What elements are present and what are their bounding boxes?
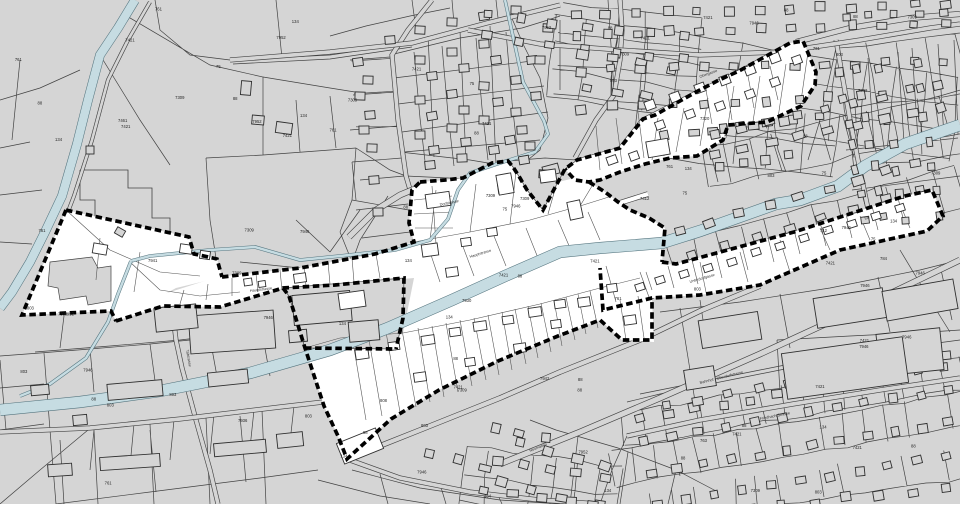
svg-text:7421: 7421 bbox=[499, 273, 509, 278]
svg-text:803: 803 bbox=[836, 52, 844, 57]
svg-text:88: 88 bbox=[38, 101, 43, 106]
svg-text:75: 75 bbox=[822, 171, 827, 176]
svg-text:7946: 7946 bbox=[860, 283, 870, 288]
svg-text:7421: 7421 bbox=[453, 384, 463, 389]
svg-text:7946: 7946 bbox=[511, 204, 521, 209]
svg-text:761: 761 bbox=[813, 46, 821, 51]
svg-text:803: 803 bbox=[305, 414, 313, 419]
svg-text:7309: 7309 bbox=[175, 95, 185, 100]
svg-text:7421: 7421 bbox=[815, 384, 825, 389]
svg-text:7421: 7421 bbox=[860, 338, 870, 343]
svg-text:134: 134 bbox=[300, 113, 308, 118]
svg-text:88: 88 bbox=[233, 96, 238, 101]
svg-text:7936: 7936 bbox=[238, 418, 248, 423]
svg-text:88: 88 bbox=[577, 387, 582, 392]
svg-text:7309: 7309 bbox=[931, 171, 941, 176]
svg-text:761: 761 bbox=[330, 128, 338, 133]
svg-text:712: 712 bbox=[820, 228, 828, 233]
svg-text:7952: 7952 bbox=[542, 25, 552, 30]
svg-text:88: 88 bbox=[91, 396, 96, 401]
svg-text:75: 75 bbox=[470, 81, 475, 86]
svg-text:134: 134 bbox=[604, 488, 612, 493]
svg-text:7421: 7421 bbox=[283, 133, 293, 138]
svg-text:7421: 7421 bbox=[826, 260, 836, 265]
svg-text:88: 88 bbox=[608, 25, 613, 30]
svg-text:7461: 7461 bbox=[118, 118, 128, 123]
svg-text:75: 75 bbox=[503, 207, 508, 212]
svg-text:88: 88 bbox=[453, 356, 458, 361]
svg-text:803: 803 bbox=[767, 173, 775, 178]
svg-text:808: 808 bbox=[380, 398, 388, 403]
svg-text:134: 134 bbox=[340, 453, 348, 458]
svg-text:134: 134 bbox=[405, 258, 413, 263]
svg-text:763: 763 bbox=[700, 438, 708, 443]
svg-text:7421: 7421 bbox=[853, 445, 863, 450]
svg-text:134: 134 bbox=[446, 315, 454, 320]
svg-text:7362: 7362 bbox=[858, 88, 868, 93]
svg-text:784: 784 bbox=[880, 256, 888, 261]
svg-text:803: 803 bbox=[610, 78, 618, 83]
svg-text:7421: 7421 bbox=[703, 15, 713, 20]
svg-text:761: 761 bbox=[155, 6, 163, 11]
svg-text:803: 803 bbox=[421, 423, 429, 428]
svg-text:134: 134 bbox=[484, 493, 492, 498]
svg-text:7421: 7421 bbox=[412, 67, 422, 72]
svg-text:75: 75 bbox=[216, 64, 221, 69]
svg-text:88: 88 bbox=[578, 377, 583, 382]
svg-text:88: 88 bbox=[518, 273, 523, 278]
svg-text:7421: 7421 bbox=[732, 432, 742, 437]
svg-text:75: 75 bbox=[683, 190, 688, 195]
svg-text:88: 88 bbox=[784, 8, 789, 13]
svg-text:134: 134 bbox=[820, 424, 828, 429]
svg-text:7946: 7946 bbox=[264, 315, 274, 320]
svg-text:7309: 7309 bbox=[245, 228, 255, 233]
svg-text:803: 803 bbox=[169, 392, 177, 397]
svg-text:88: 88 bbox=[911, 443, 916, 448]
svg-text:88: 88 bbox=[474, 130, 479, 135]
svg-text:134: 134 bbox=[890, 218, 898, 223]
svg-text:7309: 7309 bbox=[520, 196, 530, 201]
svg-text:88: 88 bbox=[681, 455, 686, 460]
svg-text:7946: 7946 bbox=[842, 225, 852, 230]
svg-text:7421: 7421 bbox=[482, 121, 492, 126]
svg-text:134: 134 bbox=[685, 166, 693, 171]
svg-text:88: 88 bbox=[803, 133, 808, 138]
svg-text:7952: 7952 bbox=[578, 449, 588, 454]
svg-text:761: 761 bbox=[15, 57, 23, 62]
svg-text:7412: 7412 bbox=[640, 196, 650, 201]
svg-text:7309: 7309 bbox=[348, 98, 358, 103]
svg-text:761: 761 bbox=[38, 228, 46, 233]
svg-text:7421: 7421 bbox=[125, 38, 135, 43]
svg-text:7309: 7309 bbox=[907, 14, 917, 19]
svg-text:88: 88 bbox=[363, 430, 368, 435]
svg-text:803: 803 bbox=[20, 369, 28, 374]
svg-text:7421: 7421 bbox=[121, 124, 131, 129]
svg-text:134: 134 bbox=[339, 321, 347, 326]
svg-text:761: 761 bbox=[105, 481, 113, 486]
svg-text:7946: 7946 bbox=[83, 368, 93, 373]
svg-text:7946: 7946 bbox=[749, 21, 759, 26]
svg-text:7320: 7320 bbox=[700, 116, 710, 121]
svg-text:88: 88 bbox=[742, 423, 747, 428]
svg-text:803: 803 bbox=[815, 490, 823, 495]
svg-text:7930: 7930 bbox=[462, 298, 472, 303]
svg-text:134: 134 bbox=[292, 19, 300, 24]
svg-text:7946: 7946 bbox=[859, 344, 869, 349]
svg-text:7421: 7421 bbox=[590, 259, 600, 264]
svg-text:803: 803 bbox=[27, 306, 35, 311]
svg-text:7952: 7952 bbox=[252, 119, 262, 124]
svg-text:803: 803 bbox=[694, 287, 702, 292]
svg-text:803: 803 bbox=[107, 402, 115, 407]
svg-text:88: 88 bbox=[403, 205, 408, 210]
svg-text:7309: 7309 bbox=[486, 193, 496, 198]
svg-text:7421: 7421 bbox=[640, 35, 650, 40]
svg-text:7946: 7946 bbox=[417, 470, 427, 475]
svg-text:7309: 7309 bbox=[620, 52, 630, 57]
svg-text:7942: 7942 bbox=[540, 376, 550, 381]
svg-text:75: 75 bbox=[871, 236, 876, 241]
svg-text:7946: 7946 bbox=[915, 270, 925, 275]
svg-text:134: 134 bbox=[55, 137, 63, 142]
svg-text:7309: 7309 bbox=[751, 488, 761, 493]
svg-text:761: 761 bbox=[666, 164, 674, 169]
svg-text:7309: 7309 bbox=[232, 271, 242, 276]
svg-text:88: 88 bbox=[853, 14, 858, 19]
svg-text:761: 761 bbox=[615, 296, 623, 301]
svg-text:7946: 7946 bbox=[300, 229, 310, 234]
svg-text:7941: 7941 bbox=[148, 258, 158, 263]
svg-text:7952: 7952 bbox=[276, 35, 286, 40]
svg-text:7309: 7309 bbox=[58, 311, 68, 316]
svg-text:7946: 7946 bbox=[902, 335, 912, 340]
